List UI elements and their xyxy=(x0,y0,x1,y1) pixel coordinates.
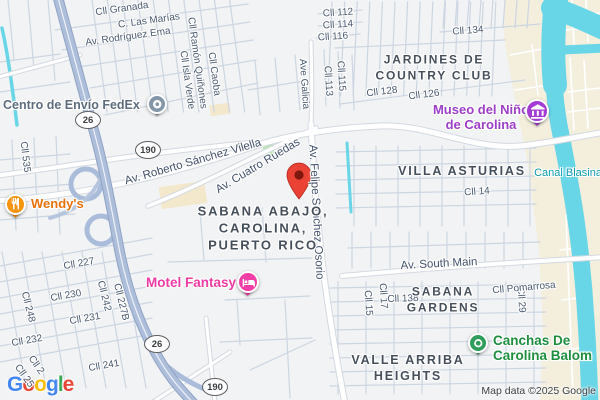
poi-label-canchas[interactable]: Canchas DeCarolina Balom xyxy=(493,333,592,363)
restaurant-icon xyxy=(5,194,26,215)
map-attribution: Map data ©2025 Google xyxy=(481,385,596,397)
route-shield-26: 26 xyxy=(75,111,101,129)
street-label-cll-15: Cll 15 xyxy=(362,290,375,316)
poi-label-fedex[interactable]: Centro de Envío FedEx xyxy=(3,98,140,112)
google-logo-letter: o xyxy=(34,373,46,396)
poi-marker-canchas[interactable] xyxy=(468,333,488,353)
package-icon xyxy=(147,94,167,114)
route-shield-190: 190 xyxy=(135,141,161,159)
area-label-valle-arriba-heights: VALLE ARRIBAHEIGHTS xyxy=(351,352,464,385)
poi-label-wendys[interactable]: Wendy's xyxy=(31,197,84,212)
poi-label-museo[interactable]: Museo del Niñode Carolina xyxy=(433,103,529,132)
poi-label-motel[interactable]: Motel Fantasy xyxy=(146,275,236,290)
area-label-sabana-gardens: SABANAGARDENS xyxy=(407,284,480,315)
bed-icon xyxy=(237,271,259,293)
museum-icon xyxy=(525,99,549,123)
street-label-cll-112: Cll 112 xyxy=(322,6,353,19)
street-label-cll-114: Cll 114 xyxy=(322,18,353,31)
street-label-cll-134: Cll 134 xyxy=(452,24,484,37)
route-shield-26: 26 xyxy=(144,335,170,353)
poi-marker-museo[interactable] xyxy=(525,99,549,123)
area-label-jardines-de-country-club: JARDINES DECOUNTRY CLUB xyxy=(376,52,493,83)
poi-marker-fedex[interactable] xyxy=(147,94,167,114)
sports-icon xyxy=(468,333,488,353)
google-logo-letter: e xyxy=(63,373,74,396)
map-canvas[interactable]: Google Map data ©2025 Google Cll Granada… xyxy=(0,0,600,400)
street-label-canal-blasina: Canal Blasina xyxy=(534,167,600,179)
google-logo-letter: g xyxy=(46,373,58,396)
poi-marker-motel[interactable] xyxy=(237,271,259,293)
route-shield-190: 190 xyxy=(202,378,228,396)
poi-marker-wendys[interactable] xyxy=(5,194,26,215)
street-label-cll-14: Cll 14 xyxy=(464,186,490,199)
area-label-sabana-abajo-carolina-puerto-rico: SABANA ABAJO,CAROLINA,PUERTO RICO xyxy=(198,204,329,255)
street-label-cll-113: Cll 113 xyxy=(321,65,334,96)
street-label-cll-115: Cll 115 xyxy=(334,60,347,91)
area-label-villa-asturias: VILLA ASTURIAS xyxy=(398,163,526,179)
street-label-cll-116: Cll 116 xyxy=(317,30,348,43)
